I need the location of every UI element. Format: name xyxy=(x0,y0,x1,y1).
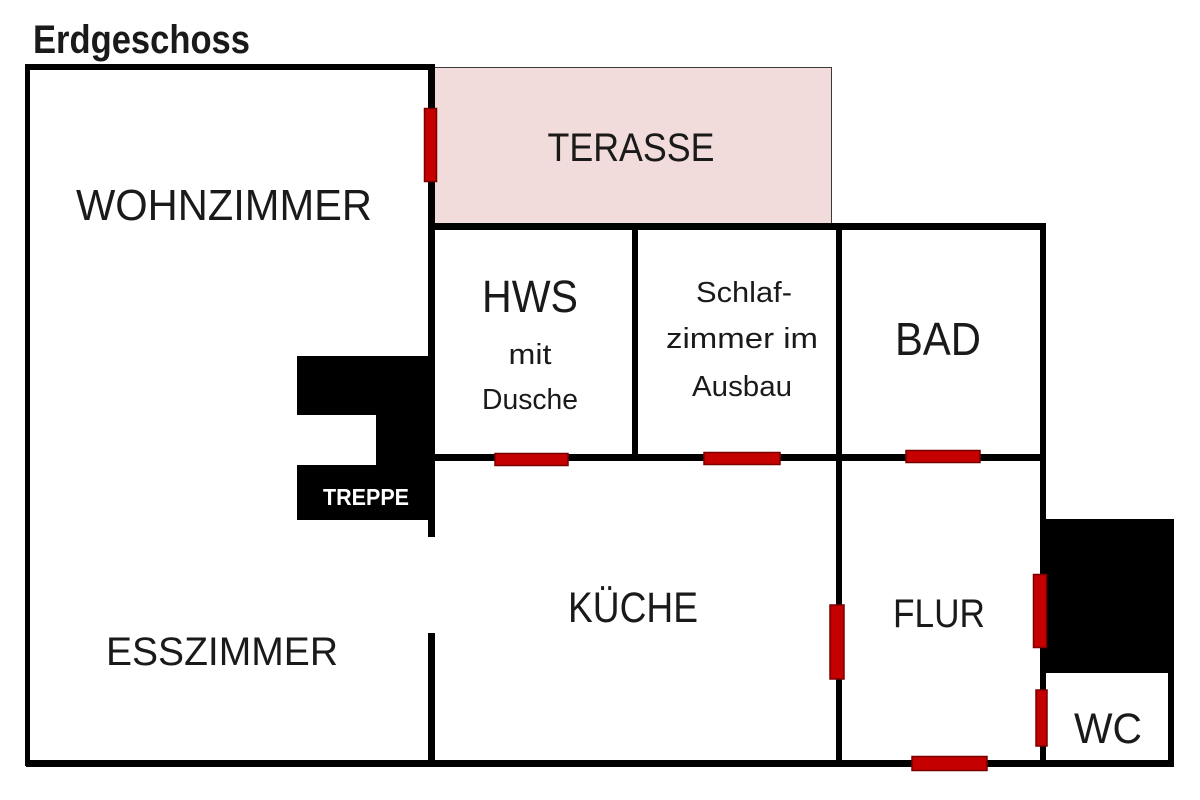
svg-text:WC: WC xyxy=(1074,705,1142,753)
svg-text:WOHNZIMMER: WOHNZIMMER xyxy=(76,181,372,230)
svg-text:Erdgeschoss: Erdgeschoss xyxy=(33,18,250,62)
svg-text:HWS: HWS xyxy=(482,271,578,322)
svg-text:BAD: BAD xyxy=(895,313,981,365)
svg-text:ESSZIMMER: ESSZIMMER xyxy=(106,630,338,674)
svg-text:mit: mit xyxy=(509,339,552,371)
svg-text:TERASSE: TERASSE xyxy=(548,126,715,170)
svg-text:FLUR: FLUR xyxy=(893,592,985,636)
svg-text:TREPPE: TREPPE xyxy=(323,484,409,510)
svg-text:KÜCHE: KÜCHE xyxy=(568,584,698,632)
svg-text:Dusche: Dusche xyxy=(482,384,578,416)
svg-text:Ausbau: Ausbau xyxy=(692,371,792,403)
svg-text:zimmer im: zimmer im xyxy=(666,323,818,355)
svg-text:Schlaf-: Schlaf- xyxy=(696,277,792,309)
